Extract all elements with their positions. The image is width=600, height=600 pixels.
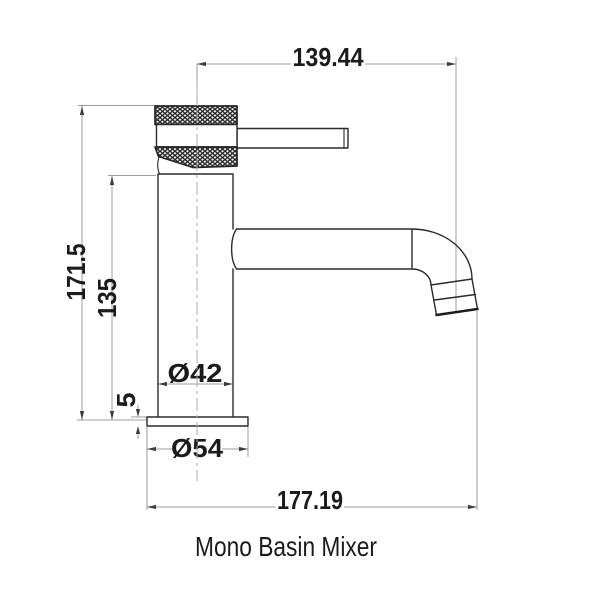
dim-arrow-top bbox=[80, 106, 84, 115]
faucet-neck-curve bbox=[158, 157, 160, 174]
dim-arrow-right bbox=[224, 382, 233, 386]
dim-body-diameter: Ø42 bbox=[158, 358, 233, 388]
drawing-page: 139.44 171.5 135 Ø42 5 Ø54 bbox=[0, 0, 600, 600]
faucet-handle bbox=[237, 129, 348, 149]
dim-body-height-label: 135 bbox=[92, 278, 122, 318]
dim-arrow-left bbox=[197, 62, 206, 66]
dim-spout-reach-lines bbox=[197, 57, 456, 312]
dim-arrow-bottom bbox=[110, 411, 114, 420]
faucet-spout bbox=[232, 229, 472, 285]
faucet-drawing bbox=[147, 86, 478, 481]
dim-spout-reach: 139.44 bbox=[197, 42, 456, 312]
dim-spout-reach-label: 139.44 bbox=[293, 42, 364, 72]
dim-overall-height: 171.5 bbox=[61, 106, 155, 421]
dim-body-diameter-label: Ø42 bbox=[168, 358, 223, 388]
dim-arrow-left bbox=[147, 505, 156, 509]
dim-arrow-right bbox=[239, 447, 248, 451]
drawing-caption: Mono Basin Mixer bbox=[195, 531, 377, 562]
faucet-knurl-band-top bbox=[155, 106, 237, 125]
spout-aerator-outlet-edge bbox=[437, 309, 478, 315]
dim-arrow-top bbox=[110, 176, 114, 185]
dim-overall-projection: 177.19 bbox=[147, 311, 477, 515]
dim-arrow-bottom bbox=[136, 426, 140, 434]
dim-base-thickness-label: 5 bbox=[111, 393, 141, 408]
dim-base-thickness: 5 bbox=[111, 393, 147, 440]
dim-arrow-right bbox=[468, 505, 477, 509]
dim-overall-height-label: 171.5 bbox=[61, 244, 91, 301]
dim-arrow-top bbox=[136, 409, 140, 417]
dim-overall-projection-label: 177.19 bbox=[277, 485, 343, 515]
dim-arrow-bottom bbox=[80, 411, 84, 420]
technical-drawing-canvas: 139.44 171.5 135 Ø42 5 Ø54 bbox=[0, 0, 600, 600]
faucet-knurl-band-bottom bbox=[155, 147, 237, 168]
dim-arrow-right bbox=[447, 62, 456, 66]
dim-arrow-left bbox=[158, 382, 167, 386]
dim-arrow-left bbox=[147, 447, 156, 451]
dim-body-height: 135 bbox=[92, 176, 156, 421]
